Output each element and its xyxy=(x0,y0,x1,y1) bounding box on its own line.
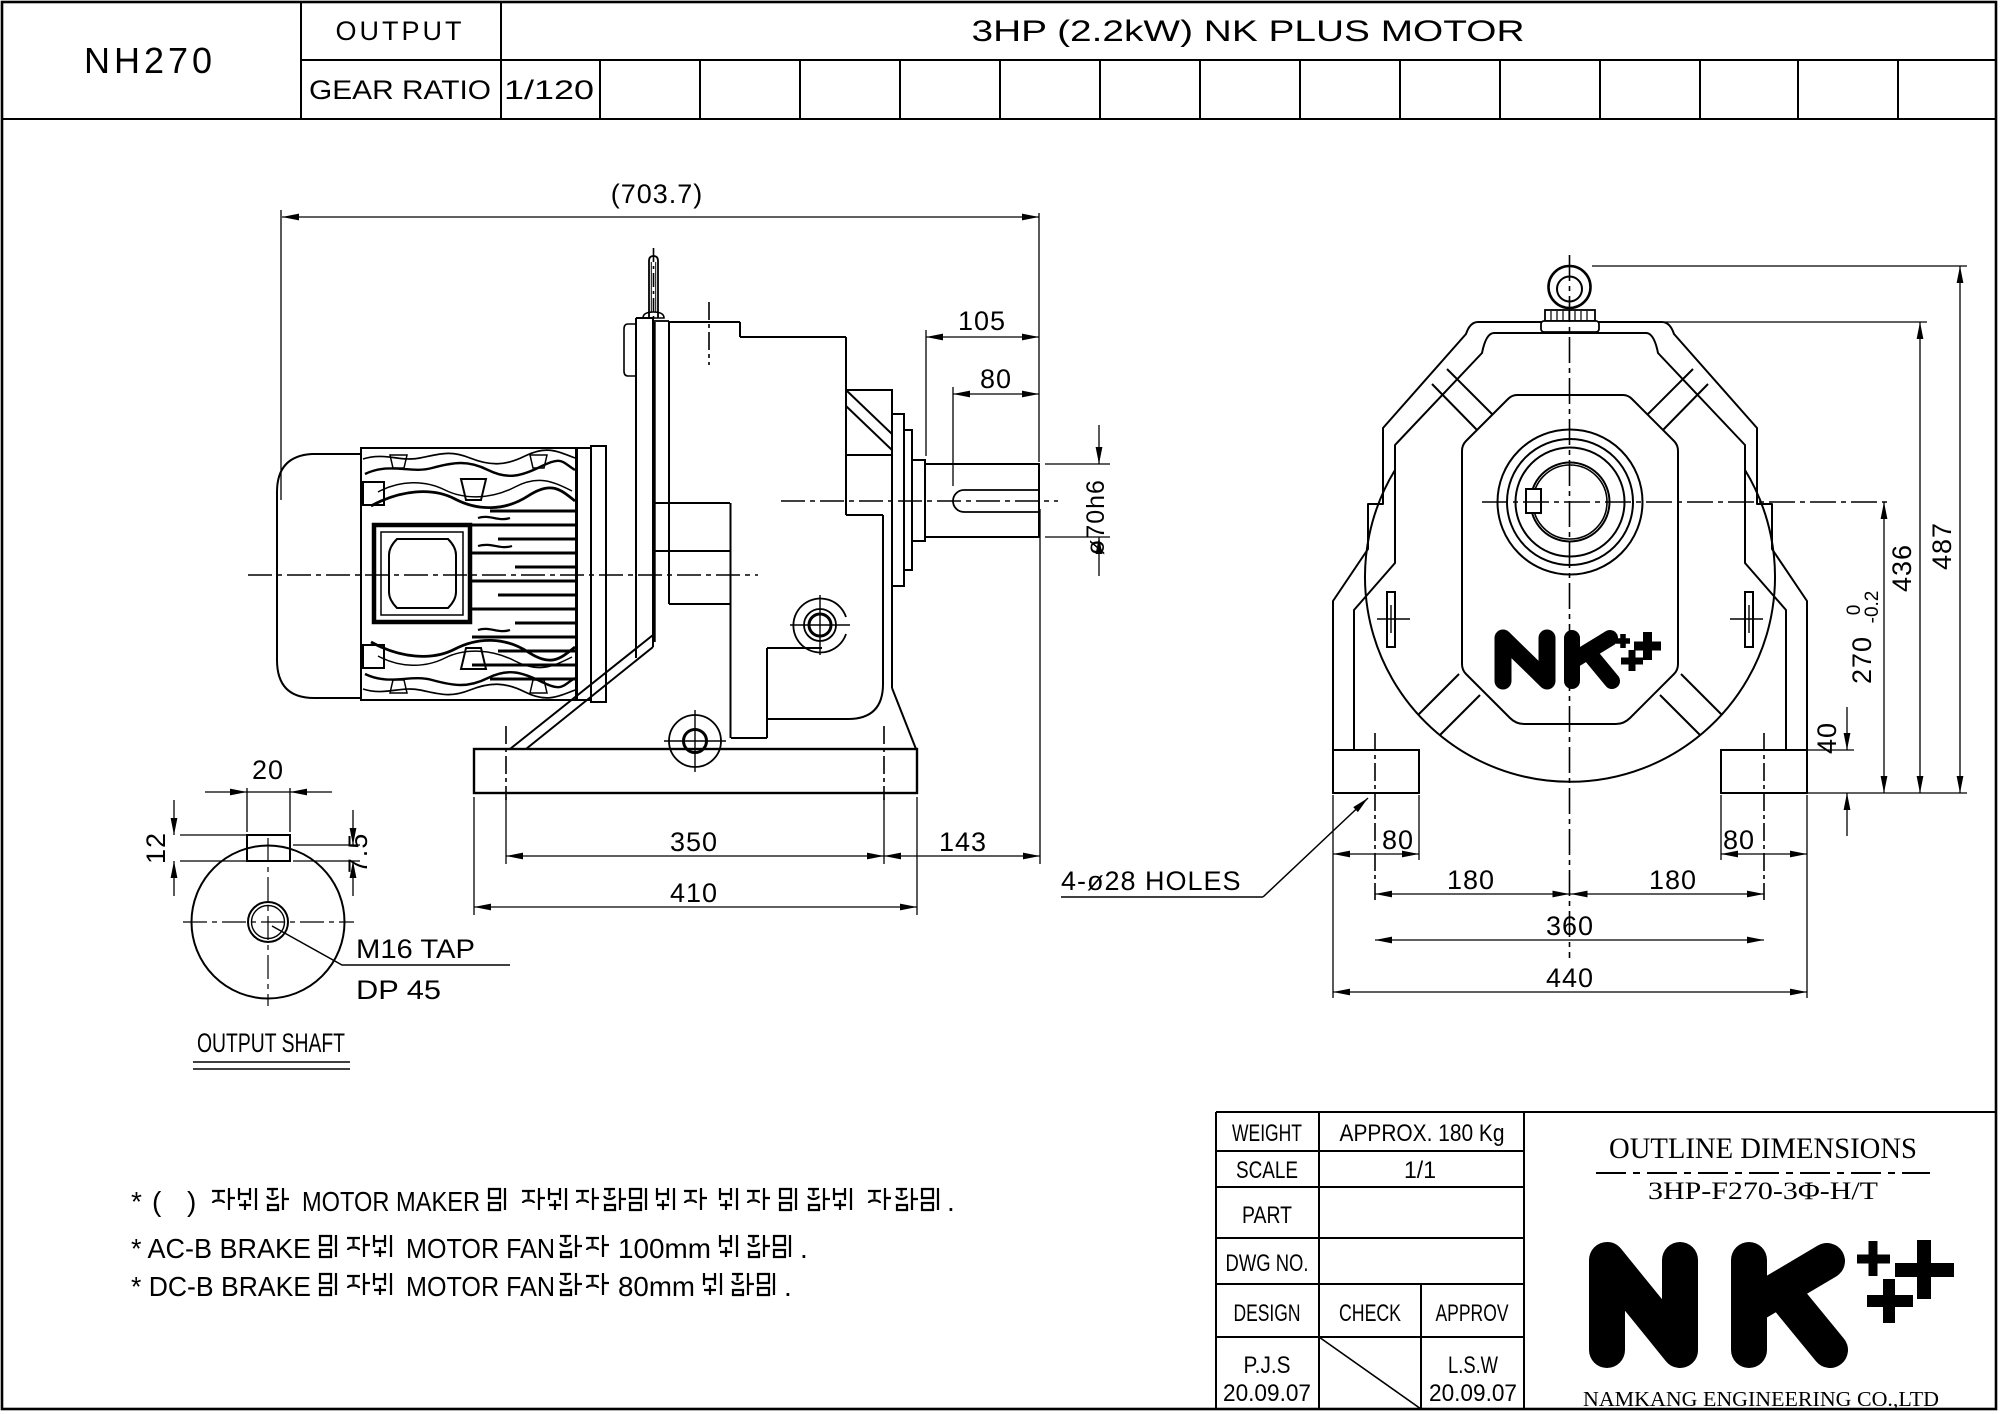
svg-text:* AC-B BRAKE: * AC-B BRAKE xyxy=(131,1233,311,1264)
svg-text:180: 180 xyxy=(1649,865,1697,895)
svg-text:MOTOR FAN: MOTOR FAN xyxy=(406,1233,555,1264)
svg-text:.: . xyxy=(800,1233,808,1264)
svg-text:80: 80 xyxy=(1382,825,1414,855)
svg-text:DWG NO.: DWG NO. xyxy=(1226,1250,1309,1277)
svg-text:MOTOR MAKER: MOTOR MAKER xyxy=(302,1186,480,1217)
svg-text:DESIGN: DESIGN xyxy=(1234,1300,1301,1327)
svg-text:OUTLINE DIMENSIONS: OUTLINE DIMENSIONS xyxy=(1609,1132,1917,1165)
svg-text:NAMKANG ENGINEERING CO.,LTD: NAMKANG ENGINEERING CO.,LTD xyxy=(1583,1387,1939,1411)
svg-text:.: . xyxy=(784,1271,792,1302)
svg-text:436: 436 xyxy=(1887,544,1917,592)
svg-text:80: 80 xyxy=(980,364,1012,394)
svg-text:487: 487 xyxy=(1927,522,1957,570)
svg-text:270: 270 xyxy=(1847,636,1877,684)
svg-text:80: 80 xyxy=(1723,825,1755,855)
svg-text:PART: PART xyxy=(1242,1202,1292,1229)
svg-text:410: 410 xyxy=(670,878,718,908)
svg-text:105: 105 xyxy=(958,306,1006,336)
svg-text:4-ø28 HOLES: 4-ø28 HOLES xyxy=(1061,866,1242,896)
svg-text:CHECK: CHECK xyxy=(1339,1300,1401,1327)
svg-text:20.09.07: 20.09.07 xyxy=(1429,1380,1517,1407)
svg-text:360: 360 xyxy=(1546,911,1594,941)
svg-text:NH270: NH270 xyxy=(84,40,216,81)
svg-text:M16 TAP: M16 TAP xyxy=(356,934,475,964)
svg-text:20.09.07: 20.09.07 xyxy=(1223,1380,1311,1407)
svg-text:ø70h6: ø70h6 xyxy=(1082,479,1110,555)
svg-text:MOTOR FAN: MOTOR FAN xyxy=(406,1271,555,1302)
svg-text:OUTPUT SHAFT: OUTPUT SHAFT xyxy=(197,1028,345,1058)
svg-text:1/120: 1/120 xyxy=(504,75,594,105)
svg-text:-0.2: -0.2 xyxy=(1862,591,1883,624)
svg-text:7.5: 7.5 xyxy=(343,833,373,874)
svg-text:180: 180 xyxy=(1447,865,1495,895)
svg-text:APPROV: APPROV xyxy=(1436,1300,1509,1327)
svg-text:(: ( xyxy=(152,1186,162,1217)
svg-text:440: 440 xyxy=(1546,963,1594,993)
svg-text:80mm: 80mm xyxy=(618,1271,695,1302)
svg-text:DP 45: DP 45 xyxy=(356,975,441,1005)
svg-text:20: 20 xyxy=(252,755,284,785)
svg-text:(703.7): (703.7) xyxy=(611,179,704,209)
svg-text:APPROX. 180 Kg: APPROX. 180 Kg xyxy=(1340,1120,1505,1147)
svg-text:OUTPUT: OUTPUT xyxy=(336,16,465,46)
svg-text:.: . xyxy=(947,1186,955,1217)
svg-text:P.J.S: P.J.S xyxy=(1244,1352,1291,1379)
svg-text:L.S.W: L.S.W xyxy=(1448,1352,1498,1379)
svg-text:): ) xyxy=(187,1186,196,1217)
svg-text:12: 12 xyxy=(141,832,171,864)
svg-text:GEAR RATIO: GEAR RATIO xyxy=(309,75,491,105)
svg-text:40: 40 xyxy=(1812,722,1842,754)
svg-text:* DC-B BRAKE: * DC-B BRAKE xyxy=(131,1271,311,1302)
svg-text:3HP (2.2kW) NK PLUS MOTOR: 3HP (2.2kW) NK PLUS MOTOR xyxy=(972,15,1525,48)
svg-text:100mm: 100mm xyxy=(618,1233,711,1264)
svg-text:WEIGHT: WEIGHT xyxy=(1232,1120,1302,1147)
svg-text:143: 143 xyxy=(939,827,987,857)
svg-text:1/1: 1/1 xyxy=(1404,1157,1436,1184)
svg-text:350: 350 xyxy=(670,827,718,857)
svg-text:SCALE: SCALE xyxy=(1236,1157,1298,1184)
svg-text:3HP-F270-3Φ-H/T: 3HP-F270-3Φ-H/T xyxy=(1648,1178,1878,1205)
svg-text:*: * xyxy=(131,1186,142,1217)
